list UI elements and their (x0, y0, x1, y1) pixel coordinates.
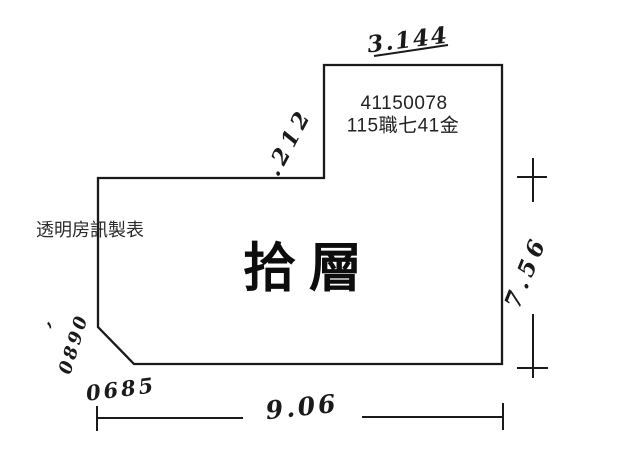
floor-title-label: 拾層 (243, 226, 375, 302)
unit-code-label: 115職七41金 (347, 111, 459, 138)
floorplan-sheet: 41150078 115職七41金 透明房訊製表 拾層 3.144 .212 7… (0, 0, 640, 466)
maker-watermark-label: 透明房訊製表 (36, 216, 144, 242)
